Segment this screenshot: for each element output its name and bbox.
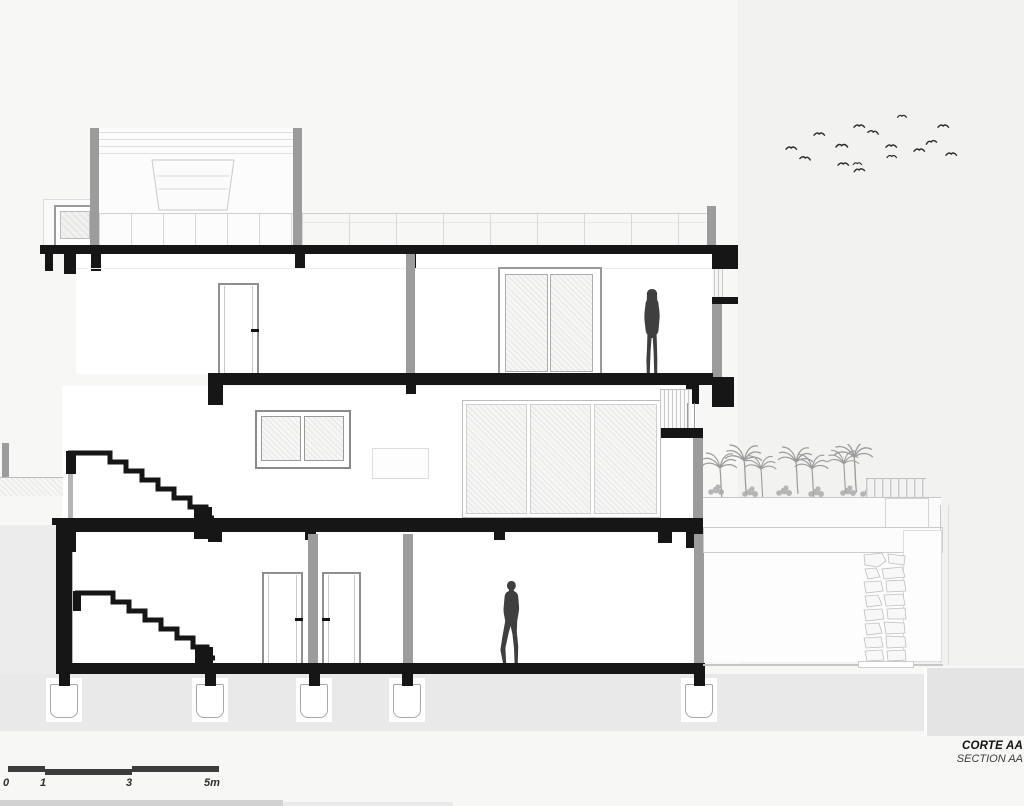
woman-figure <box>640 288 664 375</box>
drawing-title-secondary: SECTION AA <box>723 753 1023 766</box>
stone-pillar-footing <box>858 661 914 668</box>
left-soil <box>0 525 56 675</box>
mid-window-pane-left <box>261 416 301 461</box>
pile-stub-3 <box>309 666 320 686</box>
door-jamb <box>328 575 355 665</box>
pile-stub-5 <box>694 666 705 686</box>
scale-label-1: 1 <box>40 777 46 789</box>
planter-band <box>703 497 941 529</box>
sliding-panel-right <box>550 274 593 372</box>
planter-box <box>885 498 929 529</box>
ground-door-left <box>262 572 303 665</box>
rooftop-parapet-posts <box>99 213 293 245</box>
cut-column-ground-b <box>403 534 413 665</box>
scale-label-3: 3 <box>126 777 132 789</box>
cut-column-parapet-left <box>90 128 99 246</box>
cut-column-ground-right <box>694 534 704 665</box>
balcony-railing <box>714 269 723 298</box>
floor-slab-1 <box>55 518 705 532</box>
scale-bar: 0 1 3 5m <box>0 760 260 796</box>
mid-window <box>255 410 351 469</box>
sliding-glass-door <box>498 267 602 379</box>
roof-beam-stub-2 <box>64 254 76 274</box>
slab1-beam-stub-c <box>494 532 505 540</box>
pavilion-door-outline <box>903 530 942 662</box>
pile-stub-4 <box>402 666 413 686</box>
roof-beam-stub-1 <box>45 254 53 271</box>
roof-slab-edge-beam <box>712 245 738 269</box>
cut-column-parapet-right <box>707 206 716 247</box>
scale-segment-1-3 <box>45 769 132 775</box>
door-handle <box>322 618 330 621</box>
soil-band-right <box>927 668 1024 736</box>
section-drawing-canvas: 0 1 3 5m CORTE AA SECTION AA <box>0 0 1024 806</box>
ground-door-right <box>322 572 361 665</box>
soil-band <box>0 674 926 731</box>
balcony-edge-beam <box>712 377 734 407</box>
title-block: CORTE AA SECTION AA <box>723 740 1023 766</box>
rooftop-window-glass <box>60 211 90 239</box>
glass-curtain-wall <box>462 400 661 518</box>
cut-column-ground-a <box>308 534 318 665</box>
man-figure <box>497 580 526 665</box>
slab1-beam-stub-d <box>658 532 672 543</box>
scale-segment-0-1 <box>8 766 45 772</box>
door-handle <box>295 618 303 621</box>
bird-flock-icon <box>770 106 962 190</box>
roof-beam-stub-4 <box>295 254 305 269</box>
louver-mullion <box>687 403 695 430</box>
curtain-panel-3 <box>594 404 657 514</box>
pile-outline <box>685 684 713 718</box>
bottom-strip-dark <box>0 800 283 806</box>
wall-niche <box>372 448 429 479</box>
pile-outline <box>393 684 421 718</box>
floor-slab-2-end-block <box>208 373 223 405</box>
scale-segment-3-5 <box>132 766 219 772</box>
door-jamb <box>224 286 253 376</box>
curtain-panel-2 <box>530 404 591 514</box>
left-ground-ledge <box>0 477 63 496</box>
garden-far-panel <box>948 505 1024 665</box>
ground-floor-slab <box>55 663 705 674</box>
slab1-beam-stub-a <box>208 532 222 542</box>
door-handle <box>251 329 259 332</box>
stone-pillar <box>862 551 908 663</box>
garden-fence <box>866 478 926 498</box>
cut-column-floor2 <box>406 254 415 375</box>
floor2-interior <box>76 254 712 374</box>
curtain-panel-1 <box>466 404 527 514</box>
pile-stub-2 <box>205 666 216 686</box>
retaining-wall <box>56 518 72 668</box>
palm-roof-garden <box>698 444 884 498</box>
stair-lower-flight <box>73 590 217 670</box>
rooftop-railing <box>99 132 293 154</box>
door-jamb <box>268 575 297 665</box>
floor-slab-2 <box>210 373 713 385</box>
mid-window-pane-right <box>304 416 344 461</box>
rooftop-skylight <box>150 158 236 212</box>
pile-outline <box>50 684 78 718</box>
scale-label-0: 0 <box>3 777 9 789</box>
ceiling-line-floor2 <box>76 268 712 269</box>
beam-stub-mid-center <box>406 385 416 394</box>
interior-door-upper <box>218 283 259 376</box>
balcony-sill <box>712 297 738 304</box>
pile-stub-1 <box>59 666 70 686</box>
bottom-strip-light <box>283 802 453 806</box>
left-boundary-post <box>2 443 9 478</box>
roof-terrace-railing <box>302 213 707 246</box>
scale-label-5m: 5m <box>204 777 220 789</box>
drawing-title-primary: CORTE AA <box>723 740 1023 753</box>
cut-column-parapet-mid <box>293 128 302 246</box>
roof-slab <box>40 245 713 254</box>
pile-outline <box>196 684 224 718</box>
lintel-beam <box>661 428 703 438</box>
pile-outline <box>300 684 328 718</box>
sliding-panel-left <box>505 274 548 372</box>
